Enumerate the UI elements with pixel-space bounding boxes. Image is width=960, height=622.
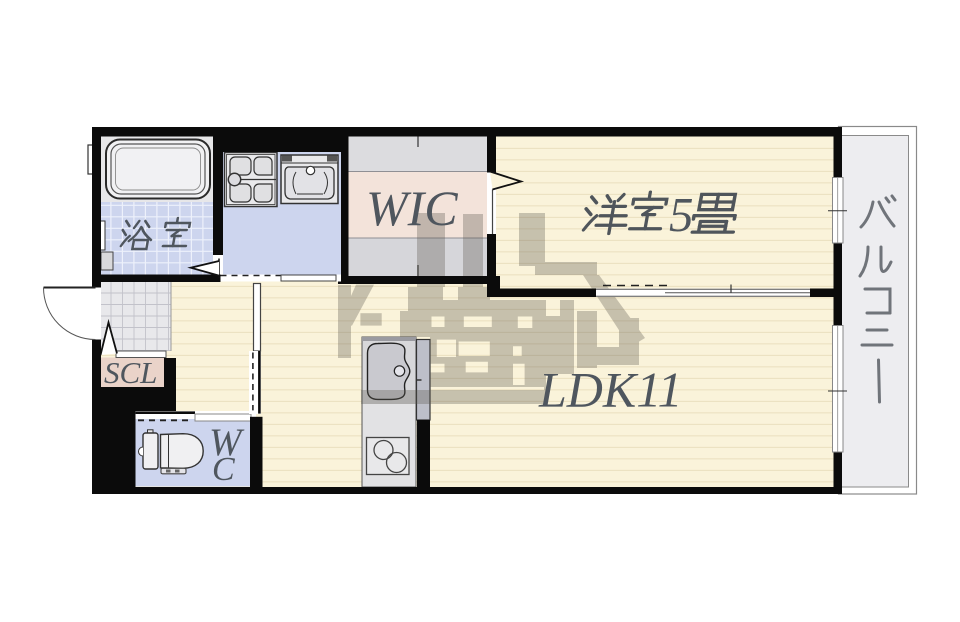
svg-text:SCL: SCL: [104, 355, 157, 390]
svg-text:C: C: [212, 451, 235, 488]
svg-text:5: 5: [669, 187, 694, 242]
svg-text:LDK11: LDK11: [538, 362, 683, 418]
svg-text:WIC: WIC: [366, 180, 458, 236]
